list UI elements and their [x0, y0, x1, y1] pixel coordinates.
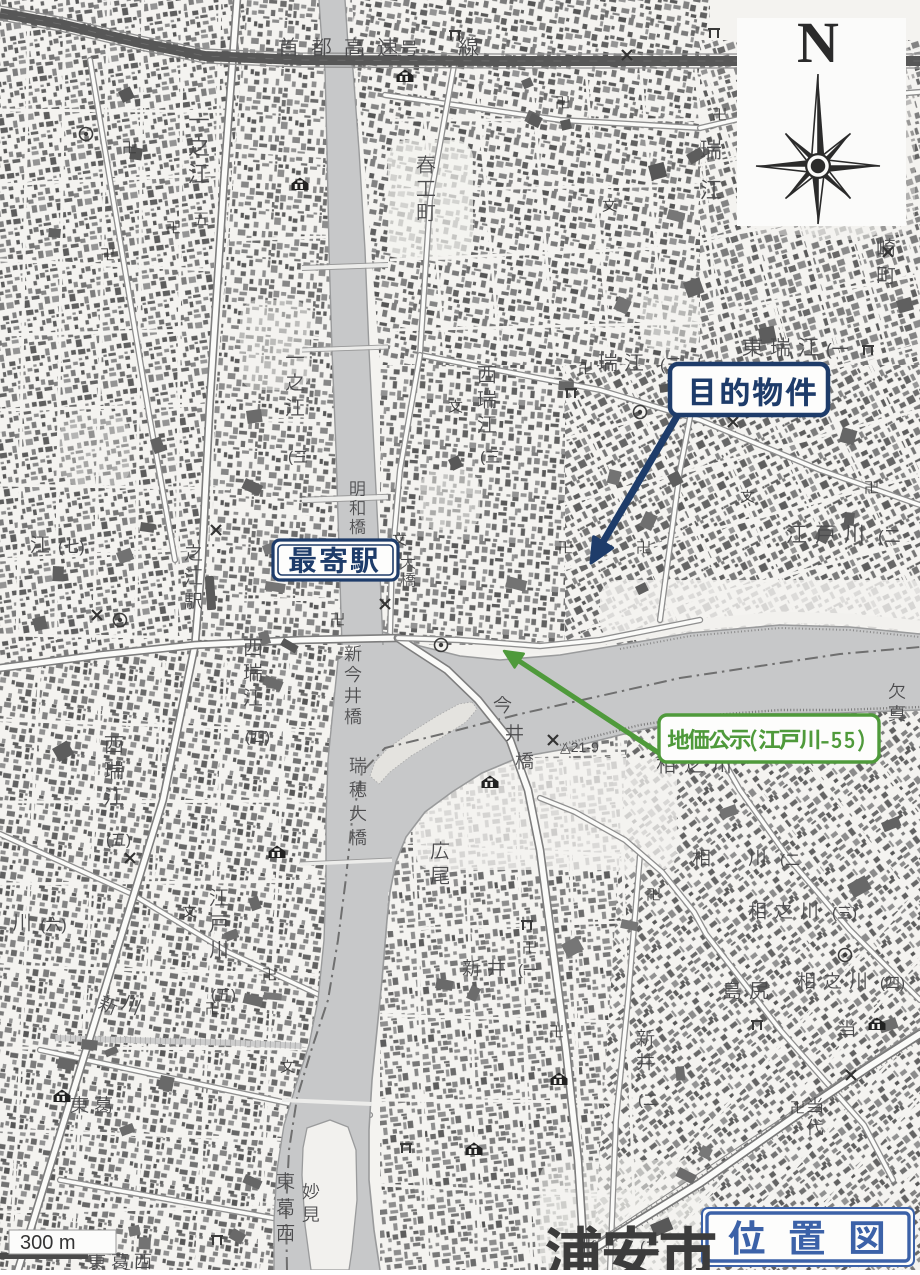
- svg-text:△21-9: △21-9: [560, 739, 599, 755]
- svg-text:N: N: [797, 10, 839, 75]
- svg-text:(四): (四): [245, 729, 270, 746]
- svg-text:(三): (三): [832, 905, 857, 922]
- svg-text:(五): (五): [106, 832, 131, 849]
- svg-text:(二: (二: [878, 527, 901, 546]
- svg-text:(六): (六): [40, 916, 67, 934]
- svg-text:(三: (三: [480, 449, 500, 466]
- svg-text:(七): (七): [58, 538, 85, 556]
- svg-text:(三: (三: [288, 449, 308, 466]
- svg-text:(一: (一: [826, 340, 849, 359]
- svg-text:300 m: 300 m: [20, 1232, 76, 1254]
- svg-text:(二: (二: [638, 1092, 658, 1109]
- svg-text:(二: (二: [780, 852, 800, 869]
- svg-text:(四): (四): [880, 975, 905, 992]
- svg-text:(五): (五): [211, 987, 236, 1004]
- svg-text:(一: (一: [518, 962, 538, 979]
